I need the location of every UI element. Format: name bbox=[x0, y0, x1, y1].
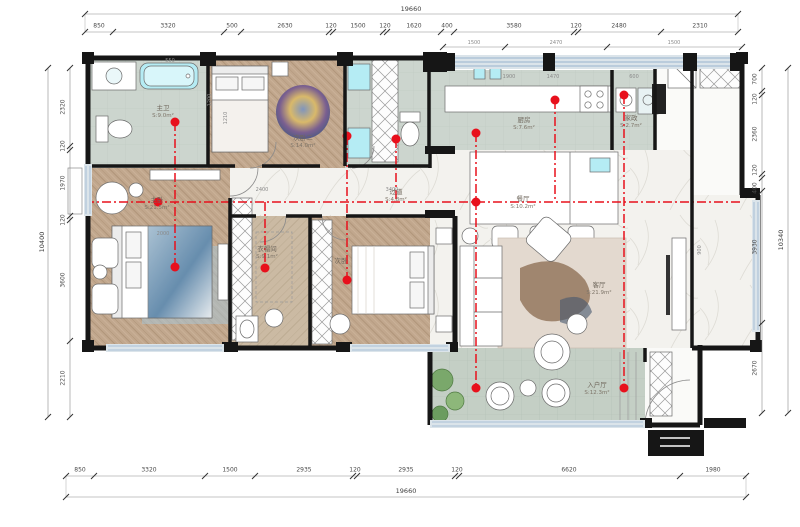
dim-right-2: 2360 bbox=[752, 126, 759, 141]
room-label-bedroom1: 次卧 bbox=[335, 258, 348, 266]
dim-right-0: 700 bbox=[752, 73, 759, 84]
dim-int-1210: 1210 bbox=[223, 112, 229, 125]
dim-bottom-7: 6620 bbox=[561, 467, 576, 474]
dim-bottom-4: 120 bbox=[349, 467, 360, 474]
dim-topsub-2: 1500 bbox=[668, 40, 681, 46]
room-label-housekeeping: 家政 S:2.7m² bbox=[620, 115, 642, 129]
dim-left-4: 3600 bbox=[60, 272, 67, 287]
dim-bottom-total: 19660 bbox=[396, 487, 417, 495]
dim-topsub-1: 2470 bbox=[550, 40, 563, 46]
floor-plan-drawing bbox=[0, 0, 800, 527]
dim-top-0: 850 bbox=[93, 23, 104, 30]
dim-int-550: 550 bbox=[165, 58, 175, 64]
dim-int-1470: 1470 bbox=[547, 74, 560, 80]
dim-top-8: 400 bbox=[441, 23, 452, 30]
dim-top-4: 120 bbox=[325, 23, 336, 30]
dim-int-900: 900 bbox=[697, 245, 703, 255]
dim-int-2400: 2400 bbox=[256, 187, 269, 193]
room-label-master-bath: 主卫 S:9.0m² bbox=[152, 105, 174, 119]
dim-top-7: 1620 bbox=[406, 23, 421, 30]
dim-left-total: 10400 bbox=[38, 232, 46, 253]
dim-left-3: 120 bbox=[60, 214, 67, 225]
dim-top-10: 120 bbox=[570, 23, 581, 30]
dim-bottom-5: 2935 bbox=[398, 467, 413, 474]
dim-bottom-3: 2935 bbox=[296, 467, 311, 474]
dim-top-total: 19660 bbox=[401, 5, 422, 13]
dim-right-4: 400 bbox=[752, 182, 759, 193]
dim-top-11: 2480 bbox=[611, 23, 626, 30]
dim-int-1200: 1200 bbox=[207, 94, 213, 107]
floor-plan-canvas: 19660 850 3320 500 2630 120 1500 120 162… bbox=[0, 0, 800, 527]
dim-bottom-2: 1500 bbox=[222, 467, 237, 474]
dim-top-3: 2630 bbox=[277, 23, 292, 30]
dim-top-1: 3320 bbox=[160, 23, 175, 30]
dim-left-1: 120 bbox=[60, 140, 67, 151]
dim-top-2: 500 bbox=[226, 23, 237, 30]
dim-top-12: 2310 bbox=[692, 23, 707, 30]
dim-right-5: 3930 bbox=[752, 239, 759, 254]
dim-bottom-8: 1980 bbox=[705, 467, 720, 474]
room-label-bedroom2: 次卧二 S:14.0m² bbox=[290, 135, 315, 149]
dim-left-5: 2210 bbox=[60, 370, 67, 385]
dim-right-6: 2670 bbox=[752, 360, 759, 375]
dim-right-1: 120 bbox=[752, 93, 759, 104]
room-label-corridor: 过道 S:4.8m² bbox=[385, 189, 407, 203]
dim-topsub-0: 1500 bbox=[468, 40, 481, 46]
dim-top-5: 1500 bbox=[350, 23, 365, 30]
room-label-entry-hall: 入户厅 S:12.3m² bbox=[584, 382, 609, 396]
dim-left-0: 2320 bbox=[60, 99, 67, 114]
room-label-living: 客厅 S:21.9m² bbox=[586, 282, 611, 296]
room-label-master-bedroom: 主卧 S:21.5m² bbox=[144, 197, 169, 211]
dim-bottom-0: 850 bbox=[74, 467, 85, 474]
room-label-cloakroom: 衣帽间 S:9.1m² bbox=[256, 246, 278, 260]
dim-top-9: 3580 bbox=[506, 23, 521, 30]
room-label-dining: 餐厅 S:10.2m² bbox=[510, 196, 535, 210]
dim-int-2000: 2000 bbox=[157, 231, 170, 237]
dim-int-600: 600 bbox=[629, 74, 639, 80]
dim-left-2: 1970 bbox=[60, 175, 67, 190]
dim-bottom-1: 3320 bbox=[141, 467, 156, 474]
dim-right-total: 10340 bbox=[777, 230, 785, 251]
dim-int-1900: 1900 bbox=[503, 74, 516, 80]
dim-right-3: 120 bbox=[752, 164, 759, 175]
dim-bottom-6: 120 bbox=[451, 467, 462, 474]
dim-top-6: 120 bbox=[379, 23, 390, 30]
room-label-kitchen: 厨房 S:7.6m² bbox=[513, 117, 535, 131]
